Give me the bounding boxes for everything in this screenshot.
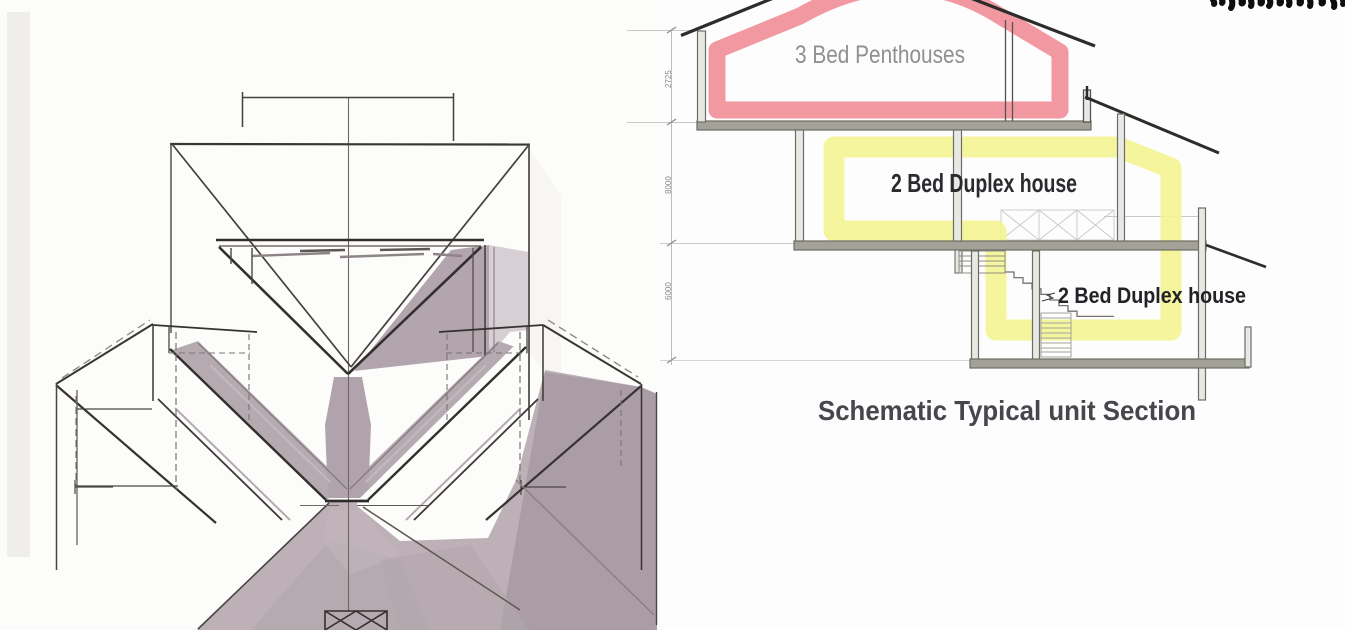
- svg-text:2725: 2725: [664, 70, 673, 88]
- svg-text:2 Bed Duplex house: 2 Bed Duplex house: [1058, 283, 1246, 308]
- svg-text:8000: 8000: [664, 176, 673, 194]
- svg-text:3 Bed Penthouses: 3 Bed Penthouses: [795, 41, 965, 69]
- svg-text:2 Bed Duplex house: 2 Bed Duplex house: [891, 168, 1077, 198]
- svg-text:Schematic Typical unit Section: Schematic Typical unit Section: [818, 395, 1196, 426]
- svg-text:6000: 6000: [664, 282, 673, 300]
